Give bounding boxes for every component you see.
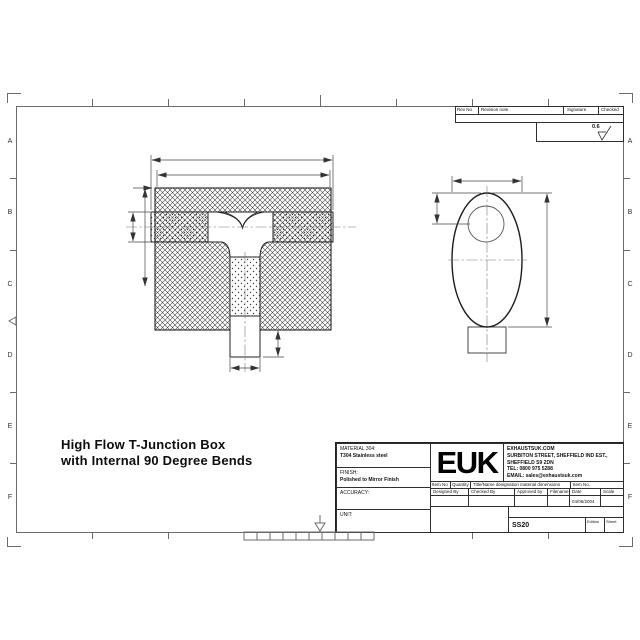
edition-cell: Edition	[585, 517, 605, 533]
accuracy-cell: ACCURACY:	[336, 487, 431, 510]
zone-letter-right: F	[625, 494, 635, 501]
zone-letter-right: E	[625, 423, 635, 430]
zone-letter-right: D	[625, 352, 635, 359]
zone-letter-left: B	[5, 209, 15, 216]
address-line: EXHAUSTSUK.COM	[507, 446, 623, 453]
corner-trim-mark	[619, 93, 633, 103]
address-line: SURBITON STREET, SHEFFIELD IND EST.,	[507, 453, 623, 460]
zone-letter-right: A	[625, 138, 635, 145]
zone-letter-left: E	[5, 423, 15, 430]
finish-value: Polished to Mirror Finish	[340, 477, 430, 484]
title-block-empty-cell	[430, 506, 509, 533]
drawing-title-line2: with Internal 90 Degree Bends	[61, 453, 311, 469]
address-cell: EXHAUSTSUK.COM SURBITON STREET, SHEFFIEL…	[503, 443, 624, 482]
unit-cell: UNIT:	[336, 509, 431, 533]
scale-ruler	[244, 532, 374, 540]
zone-letter-left: A	[5, 138, 15, 145]
drawing-title-line1: High Flow T-Junction Box	[61, 437, 311, 453]
sheet-cell: Sheet	[604, 517, 624, 533]
company-logo: EUK	[437, 445, 498, 480]
surface-finish-box	[536, 122, 624, 142]
corner-trim-mark	[7, 93, 21, 103]
finish-cell: FINISH: Polished to Mirror Finish	[336, 467, 431, 488]
drawing-title: High Flow T-Junction Box with Internal 9…	[61, 437, 311, 469]
drawing-number: SS20	[508, 517, 586, 533]
corner-trim-mark	[7, 537, 21, 547]
zone-letter-right: B	[625, 209, 635, 216]
logo-cell: EUK	[430, 443, 504, 482]
address-line: EMAIL: sales@exhaustsuk.com	[507, 473, 623, 480]
unit-label: UNIT:	[340, 512, 430, 519]
zone-letter-left: D	[5, 352, 15, 359]
address-line: SHEFFIELD S9 2DN	[507, 460, 623, 467]
surface-finish-value: 0.6	[592, 124, 600, 130]
drawing-sheet-page: A B C D E F A B C D E F Rev No Revision …	[0, 0, 640, 640]
material-value: T304 Stainless steel	[340, 453, 430, 460]
zone-letter-left: F	[5, 494, 15, 501]
address-line: TEL: 0800 975 5288	[507, 466, 623, 473]
accuracy-label: ACCURACY:	[340, 490, 430, 497]
material-cell: MATERIAL 304: T304 Stainless steel	[336, 443, 431, 468]
zone-letter-right: C	[625, 281, 635, 288]
zone-letter-left: C	[5, 281, 15, 288]
corner-trim-mark	[619, 537, 633, 547]
